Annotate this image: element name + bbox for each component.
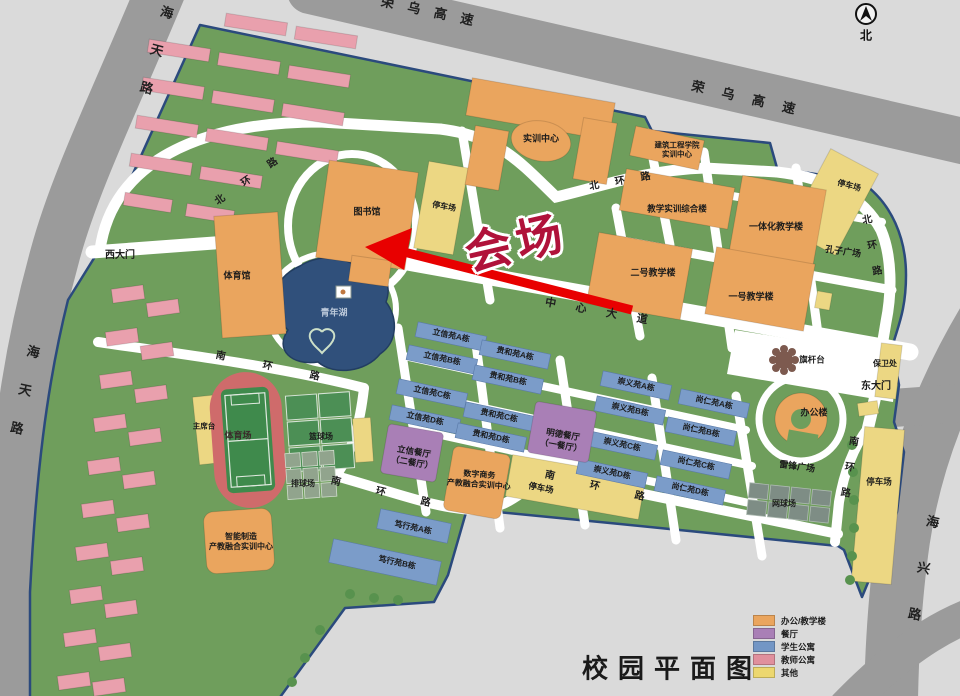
security-office-label: 保卫处 — [873, 359, 897, 369]
training-center-label: 实训中心 — [523, 133, 559, 144]
legend-item: 教师公寓 — [753, 655, 826, 664]
legend-swatch-office — [753, 615, 775, 626]
construction-college-label: 建筑工程学院 实训中心 — [655, 141, 700, 160]
legend-item: 餐厅 — [753, 629, 826, 638]
no1-teaching-label: 一号教学楼 — [728, 291, 773, 302]
smart-mfg-label: 智能制造 产教融合实训中心 — [209, 532, 273, 552]
volleyball-courts-shape — [285, 450, 337, 499]
west-gate-label: 西大门 — [105, 250, 135, 263]
legend-swatch-other — [753, 667, 775, 678]
legend-swatch-student-dorm — [753, 641, 775, 652]
compass-icon — [856, 4, 876, 24]
legend-swatch-dining — [753, 628, 775, 639]
flag-platform-label: 旗杆台 — [799, 355, 825, 366]
volleyball-label: 排球场 — [291, 479, 315, 489]
legend-item: 其他 — [753, 668, 826, 677]
youth-lake-label: 青年湖 — [320, 307, 347, 318]
flag-platform-shape — [769, 345, 799, 375]
no2-teaching-label: 二号教学楼 — [630, 267, 675, 278]
campus-map: 荣乌高速 荣乌高速 海天路 海天路 海兴路 北环路 北环路 北环路 中心大道 南… — [0, 0, 960, 696]
east-gate-road-band — [893, 400, 960, 408]
legend-item: 学生公寓 — [753, 642, 826, 651]
compass-north-label: 北 — [860, 27, 872, 44]
stadium-label: 体育场 — [224, 430, 251, 441]
teaching-training-complex-label: 教学实训综合楼 — [647, 204, 707, 215]
map-title: 校园平面图 — [582, 649, 762, 686]
legend-swatch-teacher-apartment — [753, 654, 775, 665]
library-label: 图书馆 — [353, 206, 380, 217]
legend: 办公/教学楼 餐厅 学生公寓 教师公寓 其他 — [753, 616, 826, 681]
tennis-label: 网球场 — [772, 499, 796, 509]
integrated-teaching-label: 一体化教学楼 — [749, 221, 803, 232]
basketball-label: 篮球场 — [309, 432, 333, 442]
office-building-label: 办公楼 — [800, 407, 827, 418]
east-gate-label: 东大门 — [861, 381, 891, 394]
gymnasium-label: 体育馆 — [223, 270, 250, 281]
legend-item: 办公/教学楼 — [753, 616, 826, 625]
parking-se-label: 停车场 — [866, 477, 892, 488]
rostrum-label: 主席台 — [193, 421, 216, 430]
